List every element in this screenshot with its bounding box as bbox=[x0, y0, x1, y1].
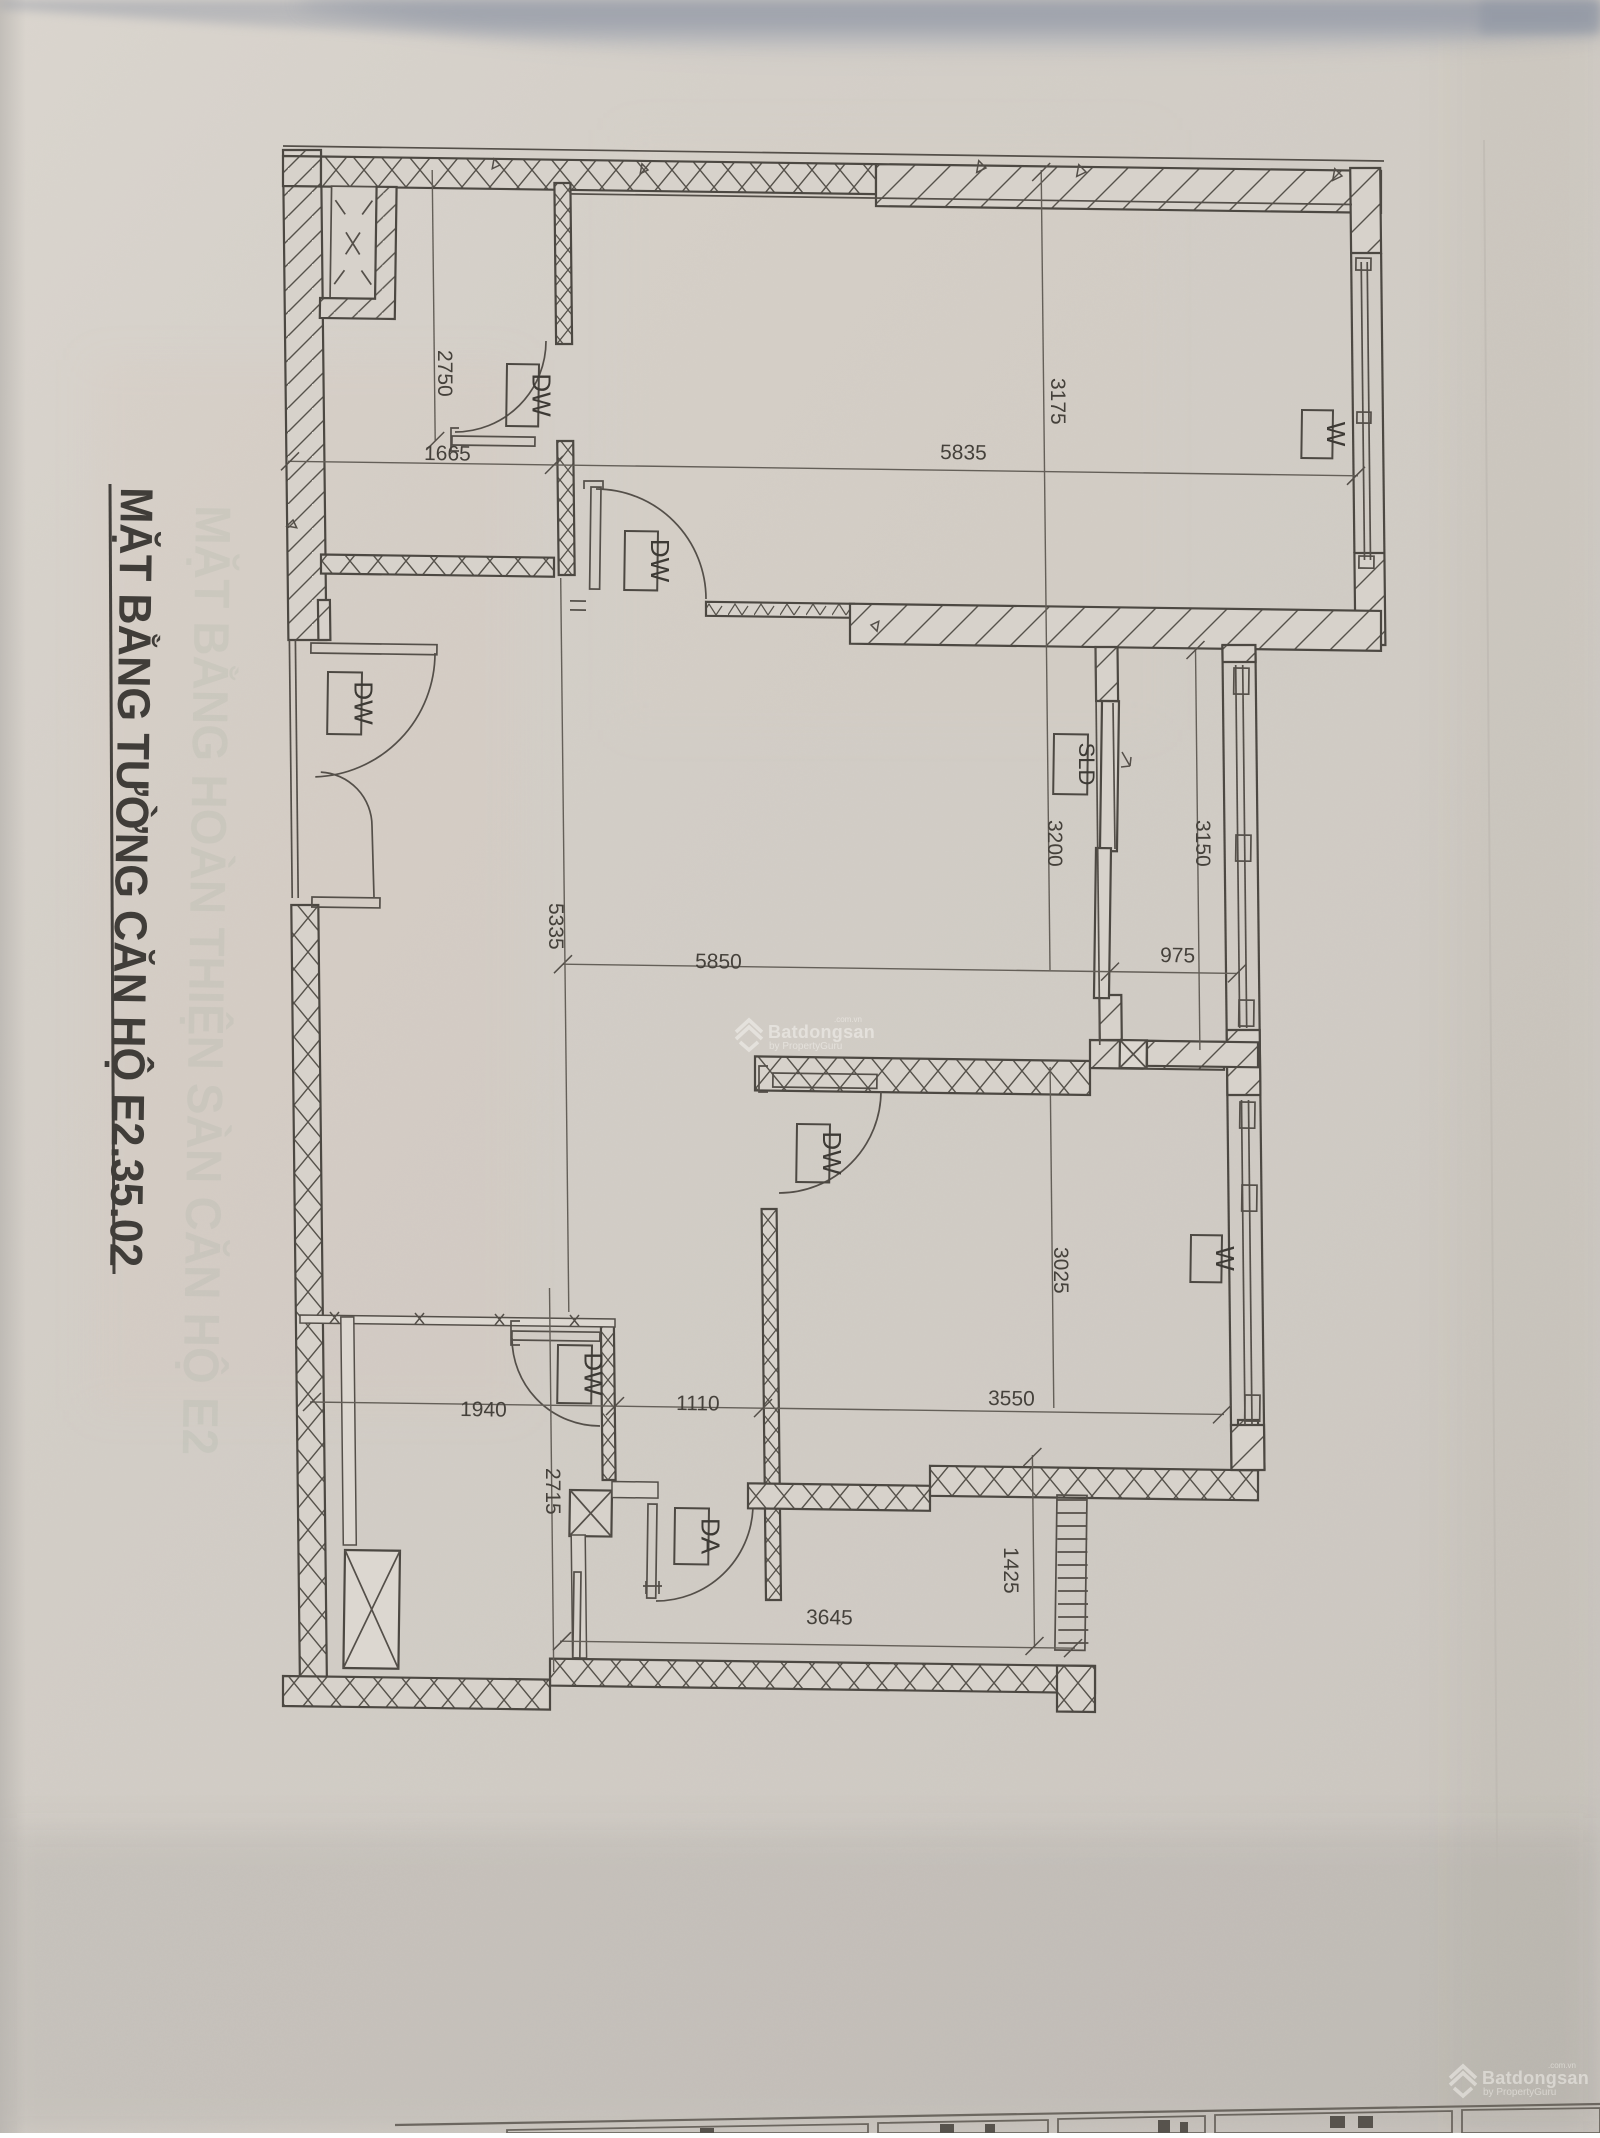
svg-text:2715: 2715 bbox=[541, 1468, 564, 1515]
svg-text:DW: DW bbox=[817, 1131, 847, 1175]
svg-text:5850: 5850 bbox=[695, 950, 742, 974]
svg-text:3550: 3550 bbox=[988, 1387, 1035, 1411]
svg-text:.com.vn: .com.vn bbox=[834, 1015, 862, 1024]
svg-text:3200: 3200 bbox=[1043, 820, 1066, 867]
svg-text:Batdongsan: Batdongsan bbox=[1482, 2068, 1589, 2088]
svg-text:1940: 1940 bbox=[460, 1398, 507, 1422]
svg-text:DW: DW bbox=[526, 373, 556, 417]
svg-text:SLD: SLD bbox=[1074, 743, 1099, 786]
svg-text:DA: DA bbox=[695, 1518, 725, 1555]
svg-text:1665: 1665 bbox=[424, 442, 471, 466]
svg-text:DW: DW bbox=[645, 539, 675, 583]
svg-text:W: W bbox=[1210, 1246, 1240, 1271]
svg-text:1110: 1110 bbox=[676, 1392, 720, 1416]
svg-text:5335: 5335 bbox=[544, 903, 567, 950]
svg-text:2750: 2750 bbox=[433, 350, 456, 397]
svg-text:3150: 3150 bbox=[1191, 820, 1214, 867]
svg-text:1425: 1425 bbox=[999, 1547, 1022, 1594]
svg-text:Batdongsan: Batdongsan bbox=[768, 1022, 875, 1042]
svg-text:DW: DW bbox=[348, 681, 378, 725]
svg-text:975: 975 bbox=[1160, 944, 1195, 967]
svg-text:by PropertyGuru: by PropertyGuru bbox=[1483, 2087, 1556, 2098]
svg-text:by PropertyGuru: by PropertyGuru bbox=[769, 1041, 842, 1052]
svg-text:3645: 3645 bbox=[806, 1606, 853, 1630]
svg-text:.com.vn: .com.vn bbox=[1548, 2061, 1576, 2070]
svg-text:W: W bbox=[1321, 422, 1351, 447]
svg-text:MẶT BẰNG TƯỜNG CĂN HỘ E2.35.02: MẶT BẰNG TƯỜNG CĂN HỘ E2.35.02 bbox=[100, 487, 163, 1268]
svg-text:5835: 5835 bbox=[940, 441, 987, 465]
svg-text:DW: DW bbox=[578, 1352, 608, 1396]
svg-text:3175: 3175 bbox=[1046, 378, 1069, 425]
svg-text:3025: 3025 bbox=[1049, 1247, 1072, 1294]
